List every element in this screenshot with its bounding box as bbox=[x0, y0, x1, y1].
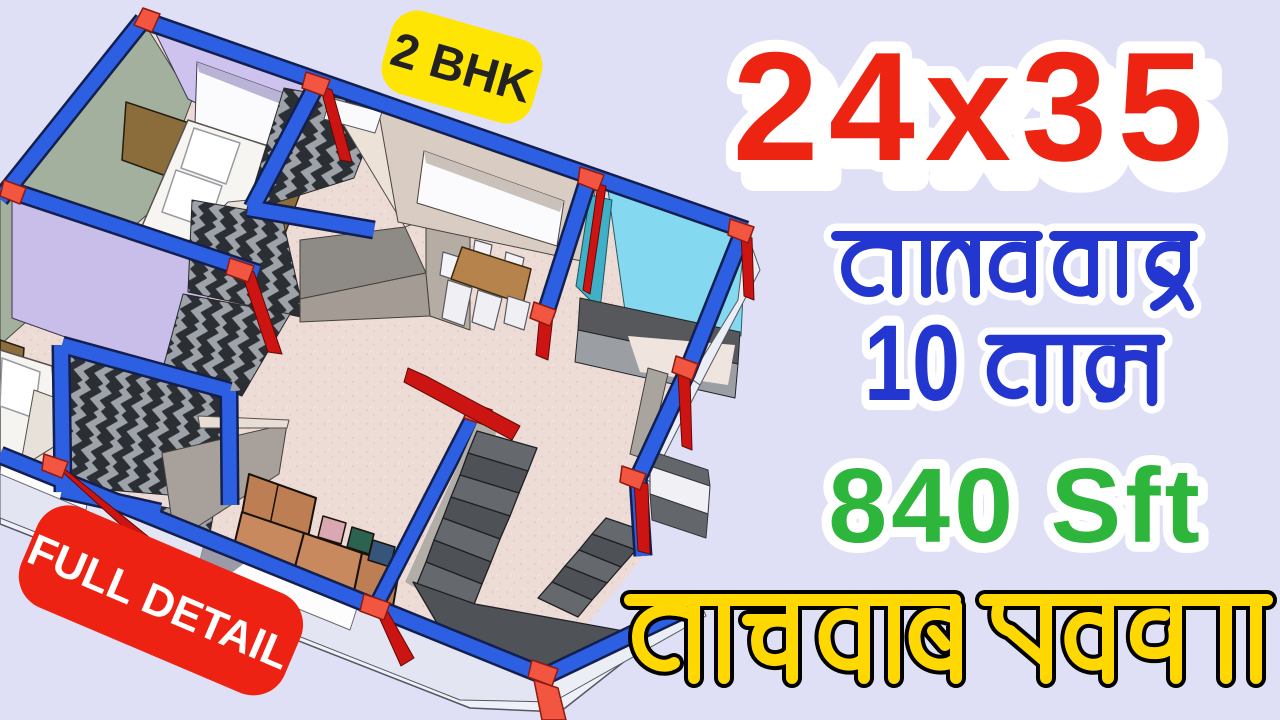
svg-text:24x35: 24x35 bbox=[732, 20, 1213, 193]
svg-text:10: 10 bbox=[864, 302, 960, 423]
svg-text:840 Sft: 840 Sft bbox=[828, 447, 1204, 565]
